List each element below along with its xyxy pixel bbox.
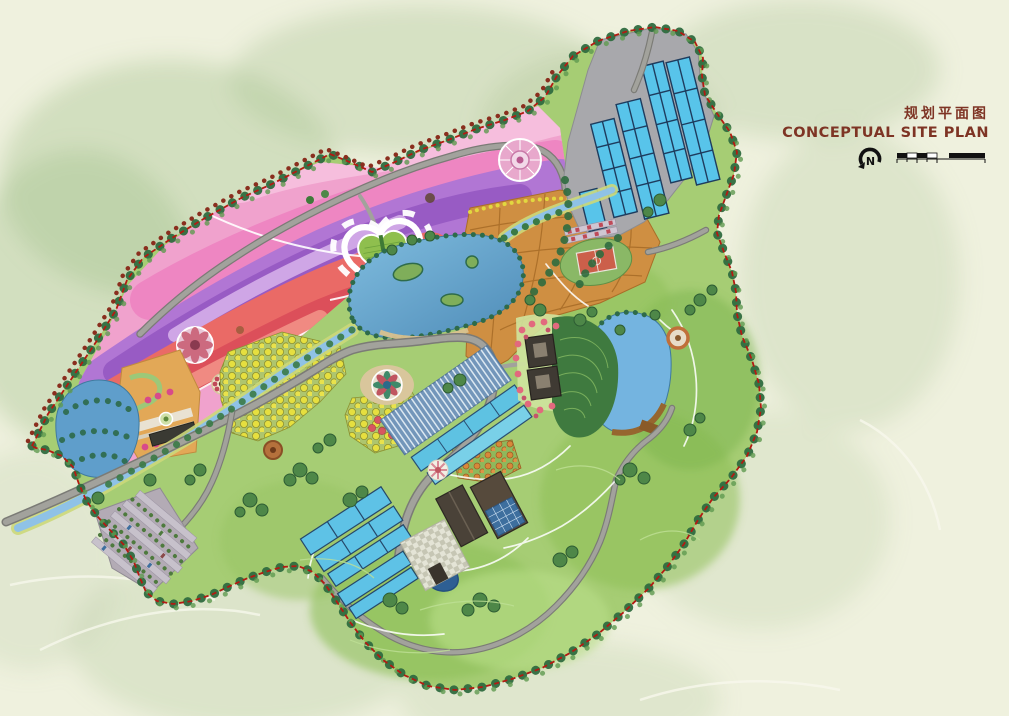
plan-title-en: CONCEPTUAL SITE PLAN [782, 124, 989, 142]
north-arrow-icon: N [855, 146, 885, 170]
lookout-circle [668, 328, 688, 348]
circular-plaza [499, 139, 541, 181]
north-label: N [866, 155, 875, 168]
map-tools-row: N [782, 146, 989, 170]
garden-mandala [360, 365, 414, 405]
sunburst-junction [428, 460, 448, 480]
watchtower-circle [264, 441, 282, 459]
site-plan-canvas: ) [0, 0, 1009, 716]
scale-bar [895, 150, 989, 166]
title-block: 规划平面图 CONCEPTUAL SITE PLAN N [782, 106, 989, 170]
plan-title-zh: 规划平面图 [782, 106, 989, 124]
